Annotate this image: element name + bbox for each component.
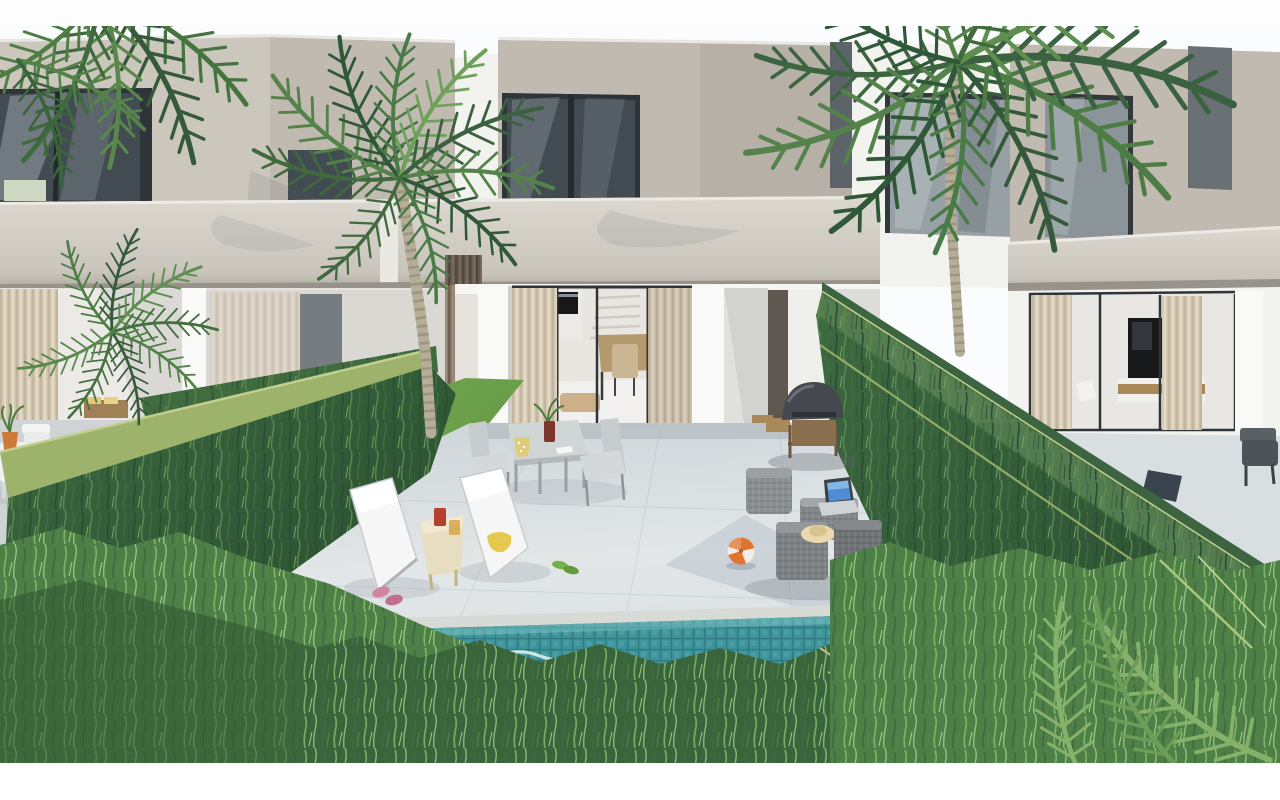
red-cup — [434, 508, 446, 526]
right-curtain — [1162, 296, 1202, 430]
interior-living — [512, 286, 692, 432]
villa-render — [0, 0, 1280, 800]
corner-cladding-panel — [1188, 46, 1232, 190]
balcony-slab — [0, 196, 880, 294]
right-living-doors — [1030, 292, 1235, 431]
bbq-handle — [792, 412, 836, 417]
wicker-cube-front — [776, 522, 835, 580]
interior-artwork — [4, 180, 46, 201]
straw-hat — [801, 525, 835, 543]
interior-sofa — [560, 393, 600, 412]
plant-vase — [544, 421, 555, 442]
right-curtain — [1032, 295, 1072, 429]
neighbour-bench — [84, 397, 128, 418]
render-canvas — [0, 0, 1280, 800]
right-villa-window — [1045, 93, 1133, 240]
wicker-pouf-back — [746, 468, 792, 514]
bbq-side-shelf — [766, 418, 790, 432]
foreground-grasses-right — [830, 542, 1280, 795]
top-sky-margin — [0, 0, 1280, 26]
bottom-white-margin — [0, 763, 1280, 800]
drink-glass — [449, 520, 460, 535]
pillar-right — [692, 286, 724, 432]
bbq-cart — [792, 420, 836, 446]
right-pillar — [1235, 290, 1263, 431]
